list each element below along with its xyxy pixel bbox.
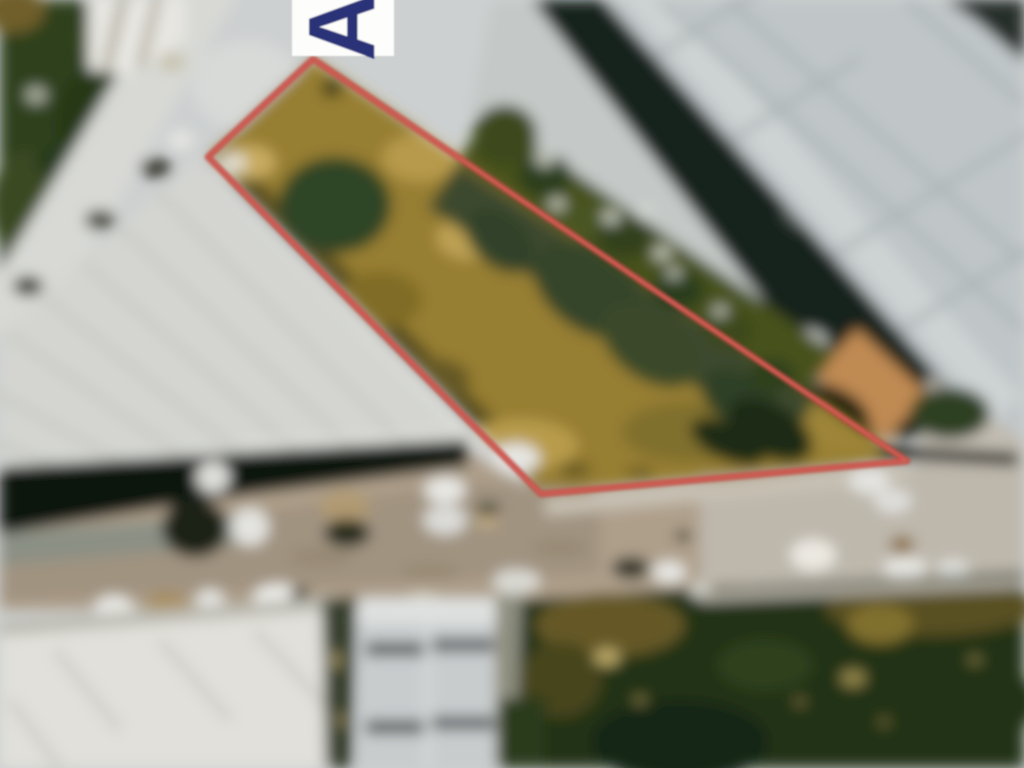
svg-text:A: A (289, 0, 395, 61)
